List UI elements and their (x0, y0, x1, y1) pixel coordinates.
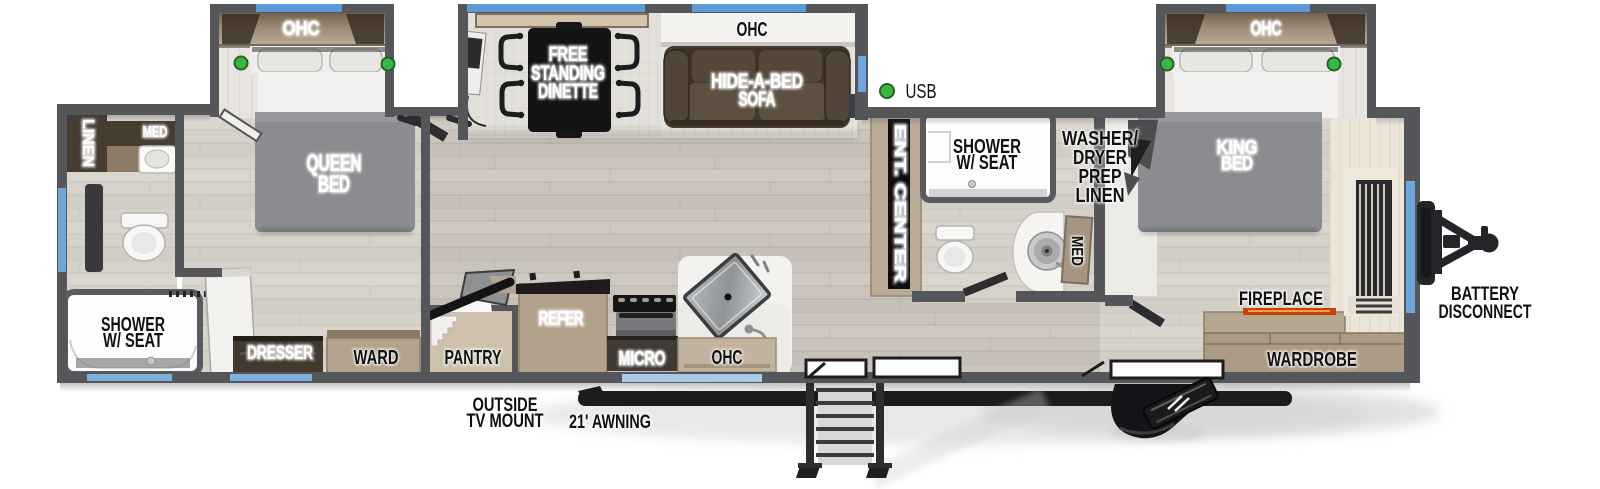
svg-text:MED: MED (143, 124, 168, 141)
svg-text:PANTRY: PANTRY (445, 347, 502, 369)
svg-text:DINETTE: DINETTE (538, 80, 598, 103)
svg-text:DRESSER: DRESSER (247, 343, 313, 364)
svg-text:W/ SEAT: W/ SEAT (103, 330, 163, 352)
svg-text:OHC: OHC (737, 19, 768, 41)
svg-text:W/ SEAT: W/ SEAT (957, 152, 1018, 174)
svg-text:OHC: OHC (1251, 18, 1282, 40)
svg-text:TV MOUNT: TV MOUNT (467, 411, 544, 432)
svg-text:WARDROBE: WARDROBE (1267, 349, 1357, 371)
svg-text:DISCONNECT: DISCONNECT (1439, 302, 1532, 323)
svg-text:MICRO: MICRO (619, 348, 666, 370)
svg-text:LINEN: LINEN (1076, 185, 1125, 207)
svg-text:REFER: REFER (539, 308, 584, 330)
svg-text:OHC: OHC (712, 347, 743, 369)
svg-text:USB: USB (906, 81, 937, 103)
svg-text:MED: MED (1068, 236, 1085, 266)
svg-text:LINEN: LINEN (79, 119, 96, 167)
svg-text:BED: BED (1221, 153, 1253, 175)
svg-text:SOFA: SOFA (739, 88, 776, 111)
svg-text:21' AWNING: 21' AWNING (569, 412, 651, 433)
svg-text:BED: BED (318, 171, 350, 198)
svg-text:WARD: WARD (354, 347, 399, 369)
svg-text:OHC: OHC (283, 18, 320, 40)
svg-text:FIREPLACE: FIREPLACE (1239, 289, 1323, 310)
svg-text:ENT. CENTER: ENT. CENTER (891, 124, 908, 283)
